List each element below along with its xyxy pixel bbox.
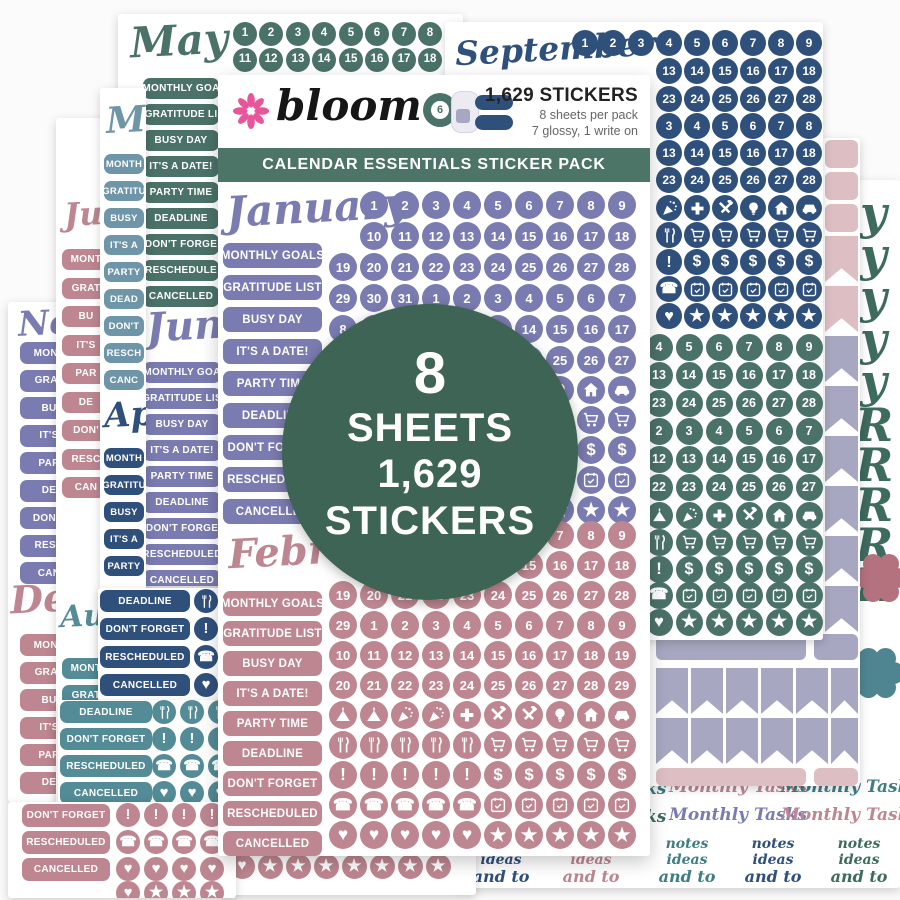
january-days-number: 9 xyxy=(608,191,636,219)
flag-stickers-lavender xyxy=(825,486,858,532)
august-labels-wide: CANCELLED xyxy=(60,782,152,804)
dollar-icon: $ xyxy=(546,761,574,789)
january-days-number: 3 xyxy=(422,191,450,219)
star-icon: ★ xyxy=(608,496,636,524)
september-days-number: 17 xyxy=(768,58,794,84)
march-labels: GRATITU xyxy=(104,181,144,201)
october-days-number: 24 xyxy=(676,390,703,417)
star-icon: ★ xyxy=(736,609,763,636)
cart-icon xyxy=(676,529,703,556)
september-days-number: 26 xyxy=(740,86,766,112)
star-icon: ★ xyxy=(370,854,395,879)
september-days-number: 27 xyxy=(768,86,794,112)
label-stickers-pink xyxy=(825,172,858,200)
january-days-number: 17 xyxy=(608,315,636,343)
february-days-number: 5 xyxy=(484,611,512,639)
main-product-card: bloom 6 1,629 STICKERS 8 sheets per pack… xyxy=(218,75,650,856)
cart-icon xyxy=(796,529,823,556)
notes-ideas-todos-row: notes ideasand to dos xyxy=(817,836,900,888)
flag-stickers-lavender xyxy=(761,668,793,714)
star-icon: ★ xyxy=(342,854,367,879)
notes-ideas-todos-row: notes ideasand to dos xyxy=(645,836,729,888)
cart-icon xyxy=(608,731,636,759)
october-days-number: 16 xyxy=(766,446,793,473)
cal-icon xyxy=(515,791,543,819)
september-days-number: 16 xyxy=(740,140,766,166)
january-days-number: 3 xyxy=(484,284,512,312)
cal-icon xyxy=(608,466,636,494)
cart-icon xyxy=(796,222,822,248)
phone-icon: ☎ xyxy=(194,645,218,669)
star-icon: ★ xyxy=(515,821,543,849)
star-icon: ★ xyxy=(546,821,574,849)
cart-icon xyxy=(712,222,738,248)
january-labels: GRATITUDE LIST xyxy=(223,275,322,300)
heart-icon: ♥ xyxy=(656,303,682,329)
may-labels: GRATITUDE LI xyxy=(143,104,219,125)
heart-icon: ♥ xyxy=(116,881,140,898)
september-days-number: 8 xyxy=(796,113,822,139)
october-days-number: 26 xyxy=(766,474,793,501)
february-days-number: 19 xyxy=(329,581,357,609)
home-icon xyxy=(768,195,794,221)
january-days-number: 2 xyxy=(391,191,419,219)
heart-icon: ♥ xyxy=(194,673,218,697)
april-labels: IT'S A xyxy=(104,529,144,549)
february-days-number: 24 xyxy=(453,671,481,699)
september-days-number: 13 xyxy=(656,58,682,84)
january-days-number: 5 xyxy=(484,191,512,219)
food-icon xyxy=(391,731,419,759)
dollar-icon: $ xyxy=(608,761,636,789)
phone-icon: ☎ xyxy=(116,830,140,854)
car-icon xyxy=(796,502,823,529)
tools-icon xyxy=(484,701,512,729)
june-labels: IT'S A DATE! xyxy=(143,440,221,461)
dollar-icon: $ xyxy=(684,249,710,275)
june-labels: DEADLINE xyxy=(143,492,221,513)
plus-icon xyxy=(453,701,481,729)
cart-icon xyxy=(577,406,605,434)
february-days-number: 8 xyxy=(577,521,605,549)
february-days-number: 16 xyxy=(515,641,543,669)
may-labels: DEADLINE xyxy=(143,208,219,229)
may-labels: DON'T FORGE xyxy=(143,234,219,255)
january-days-number: 5 xyxy=(546,284,574,312)
february-days-number: 26 xyxy=(515,671,543,699)
april-labels: PARTY xyxy=(104,556,144,576)
phone-icon: ☎ xyxy=(180,754,204,778)
excl-icon: ! xyxy=(360,761,388,789)
september-days-number: 3 xyxy=(656,113,682,139)
party-icon xyxy=(391,701,419,729)
home-icon xyxy=(577,701,605,729)
badge-line: 1,629 xyxy=(282,451,578,497)
flower-sticker-teal-center xyxy=(859,655,894,690)
cal-icon xyxy=(766,582,793,609)
january-days-number: 12 xyxy=(422,222,450,250)
cal-icon xyxy=(796,582,823,609)
january-days-number: 4 xyxy=(453,191,481,219)
dollar-icon: $ xyxy=(577,436,605,464)
january-days-number: 19 xyxy=(329,253,357,281)
february-labels: BUSY DAY xyxy=(223,651,322,676)
march-labels: DON'T xyxy=(104,316,144,336)
february-days-number: 28 xyxy=(577,671,605,699)
star-icon: ★ xyxy=(484,821,512,849)
cal-icon xyxy=(706,582,733,609)
march-title: M xyxy=(105,101,146,139)
phone-icon: ☎ xyxy=(172,830,196,854)
dollar-icon: $ xyxy=(577,761,605,789)
car-icon xyxy=(608,701,636,729)
january-days-number: 15 xyxy=(515,222,543,250)
august-labels-wide: RESCHEDULED xyxy=(60,755,152,777)
september-days-number: 14 xyxy=(684,140,710,166)
october-days-number: 5 xyxy=(676,334,703,361)
february-labels: GRATITUDE LIST xyxy=(223,621,322,646)
may-days-number: 14 xyxy=(312,48,336,72)
notes-ideas-todos-row: notes ideasand to dos xyxy=(731,836,815,888)
star-icon: ★ xyxy=(684,303,710,329)
september-title: September xyxy=(454,27,656,70)
flag-stickers-lavender xyxy=(761,718,793,764)
may-days-number: 18 xyxy=(418,48,442,72)
december-labels-wide: RESCHEDULED xyxy=(22,831,110,854)
february-days-number: 27 xyxy=(546,671,574,699)
star-icon: ★ xyxy=(766,609,793,636)
may-days-number: 12 xyxy=(259,48,283,72)
badge-line: STICKERS xyxy=(282,498,578,544)
march-labels: BUSY xyxy=(104,208,144,228)
product-image: bloom 6 1,629 STICKERS 8 sheets per pack… xyxy=(0,0,900,900)
october-days-number: 28 xyxy=(796,390,823,417)
january-days-number: 1 xyxy=(360,191,388,219)
october-days-number: 7 xyxy=(736,334,763,361)
october-days-number: 23 xyxy=(676,474,703,501)
february-days-number: 25 xyxy=(484,671,512,699)
cal-icon xyxy=(577,466,605,494)
car-icon xyxy=(608,376,636,404)
flag-stickers-lavender xyxy=(825,386,858,432)
april-labels-wide: RESCHEDULED xyxy=(100,646,190,668)
january-labels: BUSY DAY xyxy=(223,307,322,332)
february-days-number: 29 xyxy=(608,671,636,699)
star-icon: ★ xyxy=(676,609,703,636)
food-icon xyxy=(180,700,204,724)
april-title: Ap xyxy=(103,397,146,434)
dollar-icon: $ xyxy=(768,249,794,275)
january-days-number: 4 xyxy=(515,284,543,312)
flag-stickers-lavender xyxy=(825,536,858,582)
february-days-number: 9 xyxy=(608,521,636,549)
october-days-number: 4 xyxy=(706,418,733,445)
january-days-number: 13 xyxy=(453,222,481,250)
dollar-icon: $ xyxy=(676,556,703,583)
star-icon: ★ xyxy=(172,881,196,898)
august-labels-wide: DEADLINE xyxy=(60,701,152,723)
june-labels: CANCELLED xyxy=(143,570,221,586)
february-days-number: 18 xyxy=(577,641,605,669)
october-days-number: 15 xyxy=(706,362,733,389)
star-icon: ★ xyxy=(314,854,339,879)
march-labels: PARTY xyxy=(104,262,144,282)
flag-stickers-lavender xyxy=(726,718,758,764)
dollar-icon: $ xyxy=(484,761,512,789)
label-stickers-pink xyxy=(825,204,858,232)
heart-icon: ♥ xyxy=(329,821,357,849)
january-days-number: 30 xyxy=(360,284,388,312)
september-days-number: 24 xyxy=(684,167,710,193)
phone-icon: ☎ xyxy=(152,754,176,778)
january-labels: MONTHLY GOALS xyxy=(223,243,322,268)
february-days-number: 15 xyxy=(484,641,512,669)
february-labels: MONTHLY GOALS xyxy=(223,591,322,616)
february-days-number: 23 xyxy=(422,671,450,699)
cart-icon xyxy=(608,406,636,434)
dollar-icon: $ xyxy=(706,556,733,583)
april-labels: GRATITU xyxy=(104,475,144,495)
flag-stickers-lavender xyxy=(831,718,858,764)
february-days-number: 25 xyxy=(515,581,543,609)
excl-icon: ! xyxy=(329,761,357,789)
september-days-number: 15 xyxy=(712,58,738,84)
october-days-number: 17 xyxy=(796,446,823,473)
april-labels: BUSY xyxy=(104,502,144,522)
may-days-number: 11 xyxy=(233,48,257,72)
february-labels: RESCHEDULED xyxy=(223,801,322,826)
flag-stickers-lavender xyxy=(825,586,858,632)
september-days-number: 27 xyxy=(768,167,794,193)
may-labels: RESCHEDULE xyxy=(143,260,219,281)
heart-icon: ♥ xyxy=(144,857,168,881)
flag-stickers-pink xyxy=(825,286,858,332)
january-days-number: 22 xyxy=(422,253,450,281)
january-days-number: 16 xyxy=(546,222,574,250)
september-days-number: 6 xyxy=(740,113,766,139)
march-labels: DEAD xyxy=(104,289,144,309)
february-days-number: 13 xyxy=(422,641,450,669)
january-days-number: 26 xyxy=(577,346,605,374)
february-days-number: 3 xyxy=(422,611,450,639)
star-icon: ★ xyxy=(796,303,822,329)
excl-icon: ! xyxy=(453,761,481,789)
february-labels: DEADLINE xyxy=(223,741,322,766)
february-days-number: 12 xyxy=(391,641,419,669)
june-labels: GRATITUDE LIS xyxy=(143,388,221,409)
may-days-number: 7 xyxy=(392,22,416,46)
party-icon xyxy=(422,701,450,729)
may-days-number: 4 xyxy=(312,22,336,46)
excl-icon: ! xyxy=(172,803,196,827)
september-days-number: 7 xyxy=(740,30,766,56)
dollar-icon: $ xyxy=(712,249,738,275)
september-days-number: 23 xyxy=(656,86,682,112)
september-days-number: 25 xyxy=(712,167,738,193)
september-days-number: 6 xyxy=(712,30,738,56)
party-icon xyxy=(676,502,703,529)
february-labels: PARTY TIME xyxy=(223,711,322,736)
february-days-number: 17 xyxy=(577,551,605,579)
february-days-number: 28 xyxy=(608,581,636,609)
flag-stickers-lavender xyxy=(825,336,858,382)
october-days-number: 7 xyxy=(796,418,823,445)
badge-line: SHEETS xyxy=(282,405,578,451)
december-labels-wide: CANCELLED xyxy=(22,858,110,881)
february-days-number: 7 xyxy=(546,611,574,639)
june-labels: MONTHLY GOA xyxy=(143,362,221,383)
dollar-icon: $ xyxy=(796,556,823,583)
january-days-number: 25 xyxy=(515,253,543,281)
february-days-number: 19 xyxy=(608,641,636,669)
may-labels: IT'S A DATE! xyxy=(143,156,219,177)
february-days-number: 16 xyxy=(546,551,574,579)
cal-icon xyxy=(740,276,766,302)
food-icon xyxy=(194,589,218,613)
monthly-tasks-row: Monthly Tasks xyxy=(781,807,900,824)
april-labels-wide: DON'T FORGET xyxy=(100,618,190,640)
heart-icon: ♥ xyxy=(180,781,204,804)
may-labels: BUSY DAY xyxy=(143,130,219,151)
phone-icon: ☎ xyxy=(391,791,419,819)
march-labels: IT'S A xyxy=(104,235,144,255)
dollar-icon: $ xyxy=(608,436,636,464)
cart-icon xyxy=(546,731,574,759)
january-days-number: 8 xyxy=(577,191,605,219)
flag-stickers-lavender xyxy=(796,718,828,764)
cake-icon xyxy=(360,701,388,729)
star-icon: ★ xyxy=(426,854,451,879)
february-days-number: 20 xyxy=(329,671,357,699)
september-days-number: 18 xyxy=(796,58,822,84)
tools-icon xyxy=(712,195,738,221)
september-days-number: 25 xyxy=(712,86,738,112)
food-icon xyxy=(453,731,481,759)
cake-icon xyxy=(329,701,357,729)
phone-icon: ☎ xyxy=(656,276,682,302)
plus-icon xyxy=(706,502,733,529)
star-icon: ★ xyxy=(608,821,636,849)
september-days-number: 9 xyxy=(796,30,822,56)
september-days-number: 5 xyxy=(684,30,710,56)
label-stickers-pink xyxy=(825,140,858,168)
january-days-number: 11 xyxy=(391,222,419,250)
food-icon xyxy=(422,731,450,759)
star-icon: ★ xyxy=(577,821,605,849)
february-labels: DON'T FORGET xyxy=(223,771,322,796)
september-days-number: 23 xyxy=(656,167,682,193)
march-labels: CANC xyxy=(104,370,144,390)
october-days-number: 3 xyxy=(676,418,703,445)
tools-icon xyxy=(515,701,543,729)
february-labels: CANCELLED xyxy=(223,831,322,856)
september-days-number: 26 xyxy=(740,167,766,193)
february-days-number: 17 xyxy=(546,641,574,669)
february-days-number: 26 xyxy=(546,581,574,609)
february-days-number: 29 xyxy=(329,611,357,639)
october-days-number: 25 xyxy=(706,390,733,417)
heart-icon: ♥ xyxy=(453,821,481,849)
may-days-number: 8 xyxy=(418,22,442,46)
flower-sticker-pink xyxy=(855,552,900,604)
march-labels: MONTH xyxy=(104,154,144,174)
february-days-number: 14 xyxy=(453,641,481,669)
star-icon: ★ xyxy=(577,496,605,524)
cal-icon xyxy=(736,582,763,609)
excl-icon: ! xyxy=(194,617,218,641)
october-days-number: 26 xyxy=(736,390,763,417)
february-days-number: 8 xyxy=(577,611,605,639)
october-days-number: 5 xyxy=(736,418,763,445)
label-stickers-pink xyxy=(814,768,858,786)
september-days-number: 28 xyxy=(796,86,822,112)
flag-stickers-pink xyxy=(825,236,858,282)
heart-icon: ♥ xyxy=(360,821,388,849)
flag-stickers-lavender xyxy=(656,668,688,714)
sheet-dec-block: DON'T FORGETRESCHEDULEDCANCELLED!!!!☎☎☎☎… xyxy=(8,802,236,898)
excl-icon: ! xyxy=(422,761,450,789)
february-days-number: 1 xyxy=(360,611,388,639)
january-days-number: 24 xyxy=(484,253,512,281)
phone-icon: ☎ xyxy=(329,791,357,819)
star-icon: ★ xyxy=(144,881,168,898)
september-days-number: 5 xyxy=(712,113,738,139)
september-days-number: 24 xyxy=(684,86,710,112)
september-days-number: 28 xyxy=(796,167,822,193)
october-days-number: 6 xyxy=(766,418,793,445)
april-labels: MONTH xyxy=(104,448,144,468)
cart-icon xyxy=(684,222,710,248)
star-icon: ★ xyxy=(398,854,423,879)
september-days-number: 1 xyxy=(572,30,598,56)
january-days-number: 16 xyxy=(577,315,605,343)
january-days-number: 18 xyxy=(608,222,636,250)
heart-icon: ♥ xyxy=(172,857,196,881)
february-days-number: 6 xyxy=(515,611,543,639)
cart-icon xyxy=(736,529,763,556)
excl-icon: ! xyxy=(656,249,682,275)
september-days-number: 15 xyxy=(712,140,738,166)
january-days-number: 17 xyxy=(577,222,605,250)
flag-stickers-lavender xyxy=(825,436,858,482)
september-days-number: 16 xyxy=(740,58,766,84)
cart-icon xyxy=(768,222,794,248)
cal-icon xyxy=(577,791,605,819)
june-labels: BUSY DAY xyxy=(143,414,221,435)
january-days-number: 6 xyxy=(577,284,605,312)
may-days-number: 2 xyxy=(259,22,283,46)
september-days-number: 17 xyxy=(768,140,794,166)
september-days-number: 18 xyxy=(796,140,822,166)
dollar-icon: $ xyxy=(515,761,543,789)
phone-icon: ☎ xyxy=(453,791,481,819)
flag-stickers-lavender xyxy=(691,668,723,714)
cal-icon xyxy=(546,791,574,819)
may-days-number: 17 xyxy=(392,48,416,72)
may-days-number: 5 xyxy=(339,22,363,46)
cal-icon xyxy=(484,791,512,819)
february-days-number: 21 xyxy=(360,671,388,699)
tools-icon xyxy=(736,502,763,529)
cal-icon xyxy=(684,276,710,302)
february-days-number: 4 xyxy=(453,611,481,639)
october-days-number: 14 xyxy=(706,446,733,473)
cart-icon xyxy=(515,731,543,759)
dollar-icon: $ xyxy=(736,556,763,583)
june-labels: RESCHEDULED xyxy=(143,544,221,565)
october-days-number: 18 xyxy=(796,362,823,389)
sheet-april-block: DEADLINEDON'T FORGETRESCHEDULEDCANCELLED… xyxy=(98,588,222,702)
